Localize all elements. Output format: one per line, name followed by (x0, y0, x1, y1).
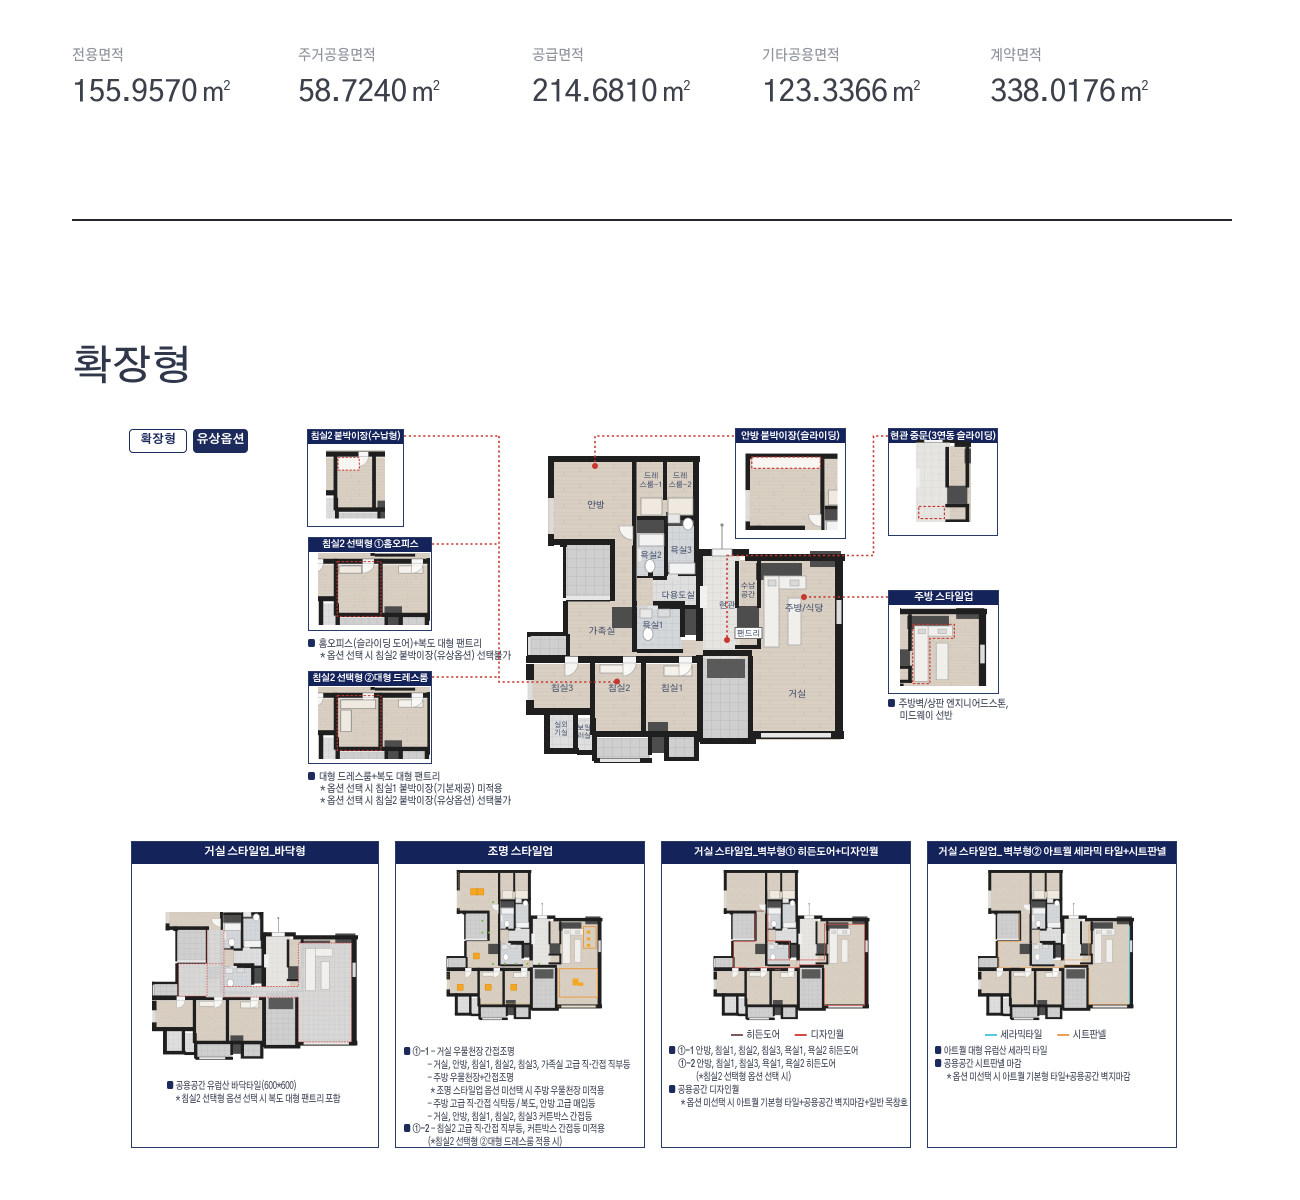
svg-text:보일: 보일 (577, 724, 591, 732)
svg-text:드레: 드레 (644, 472, 659, 480)
svg-text:다용도실: 다용도실 (661, 591, 694, 600)
svg-text:팬드리: 팬드리 (737, 629, 760, 638)
svg-text:드레: 드레 (673, 472, 688, 480)
svg-text:실외: 실외 (554, 721, 568, 729)
svg-text:주방/식당: 주방/식당 (785, 603, 823, 613)
svg-text:러실: 러실 (577, 732, 591, 740)
svg-text:가족실: 가족실 (589, 626, 615, 636)
svg-text:수납: 수납 (741, 581, 756, 590)
svg-text:침실1: 침실1 (661, 683, 684, 693)
svg-text:기실: 기실 (554, 729, 568, 737)
svg-text:거실: 거실 (788, 689, 806, 699)
svg-text:욕실2: 욕실2 (640, 551, 661, 560)
svg-text:침실3: 침실3 (551, 683, 574, 693)
svg-text:안방: 안방 (587, 500, 605, 510)
svg-text:침실2: 침실2 (608, 683, 631, 693)
svg-text:공간: 공간 (741, 591, 756, 599)
svg-text:욕실1: 욕실1 (642, 621, 663, 630)
svg-text:스룸-1: 스룸-1 (639, 481, 662, 489)
svg-text:스룸-2: 스룸-2 (668, 481, 691, 489)
svg-text:욕실3: 욕실3 (670, 546, 691, 555)
